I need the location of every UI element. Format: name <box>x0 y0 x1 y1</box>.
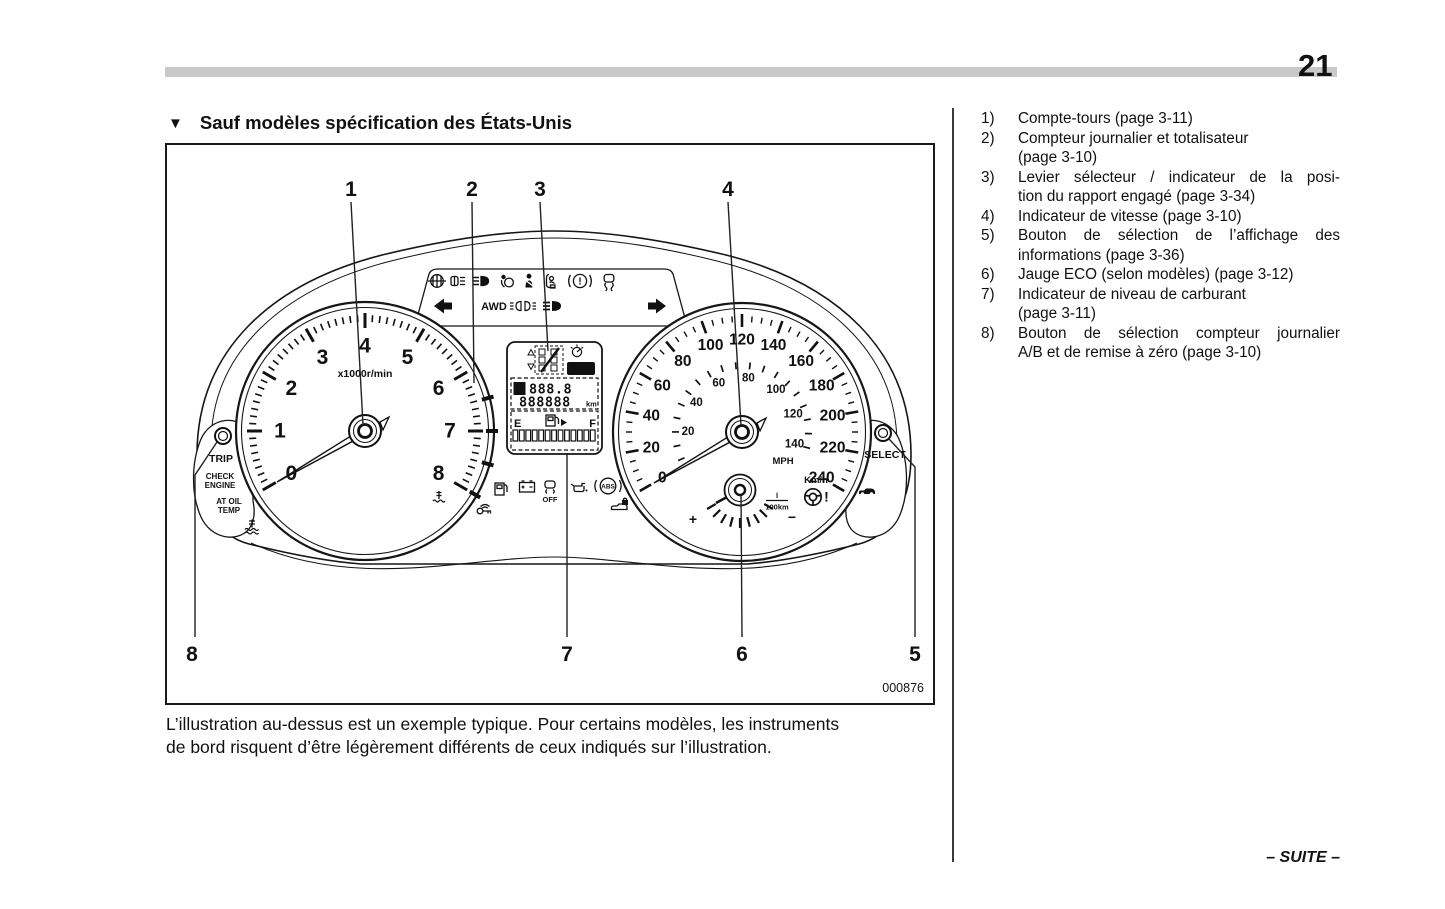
fuel-full-label: F <box>589 418 596 430</box>
svg-text:1: 1 <box>274 420 286 443</box>
svg-text:60: 60 <box>654 378 671 395</box>
svg-text:140: 140 <box>761 337 787 354</box>
legend-item-text: Indicateur de niveau de carburant(page 3… <box>1018 285 1340 324</box>
legend-item: 7)Indicateur de niveau de carburant(page… <box>981 285 1343 324</box>
headlight-warning-icon <box>473 277 489 286</box>
section-title: ▼ Sauf modèles spécification des États-U… <box>168 112 572 134</box>
legend-item-number: 4) <box>981 207 1018 227</box>
legend-list: 1)Compte-tours (page 3-11)2)Compteur jou… <box>981 109 1343 363</box>
select-button <box>875 425 891 441</box>
legend-item-text: Levier sélecteur / indicateur de la posi… <box>1018 168 1340 207</box>
svg-text:3: 3 <box>317 346 329 369</box>
svg-text:80: 80 <box>742 372 755 384</box>
svg-text:140: 140 <box>785 439 804 451</box>
trip-selector-letter: A <box>516 384 523 395</box>
svg-text:l: l <box>776 491 778 500</box>
legend-item: 3)Levier sélecteur / indicateur de la po… <box>981 168 1343 207</box>
lcd-display: SET A 888.8 888888 km E F <box>507 342 602 454</box>
legend-item-number: 2) <box>981 129 1018 168</box>
header-rule <box>165 67 1337 77</box>
trip-button <box>215 428 231 444</box>
speedometer: 020406080100120140160180200220240 204060… <box>613 303 871 561</box>
legend-item-number: 1) <box>981 109 1018 129</box>
svg-text:4: 4 <box>359 335 371 358</box>
legend-item-number: 6) <box>981 265 1018 285</box>
section-marker-icon: ▼ <box>168 115 183 132</box>
eco-plus-label: + <box>689 511 697 527</box>
legend-item-text: Indicateur de vitesse (page 3-10) <box>1018 207 1340 227</box>
page-number: 21 <box>1298 48 1332 84</box>
awd-indicator: AWD <box>481 301 507 313</box>
svg-text:220: 220 <box>820 439 846 456</box>
odometer-value: 888888 <box>519 395 571 411</box>
column-divider <box>952 108 954 862</box>
svg-text:6: 6 <box>433 377 445 400</box>
legend-item: 8)Bouton de sélection compteur journalie… <box>981 324 1343 363</box>
svg-text:5: 5 <box>402 346 414 369</box>
svg-text:!: ! <box>824 489 829 505</box>
at-oil-temp-label-2: TEMP <box>218 506 241 515</box>
svg-text:100km: 100km <box>765 503 789 512</box>
callout-2: 2 <box>466 178 478 201</box>
svg-text:2: 2 <box>286 377 298 400</box>
svg-text:!: ! <box>578 277 581 288</box>
legend-item: 1)Compte-tours (page 3-11) <box>981 109 1343 129</box>
legend-item: 6)Jauge ECO (selon modèles) (page 3-12) <box>981 265 1343 285</box>
section-title-text: Sauf modèles spécification des États-Uni… <box>200 112 572 134</box>
svg-text:120: 120 <box>729 332 755 349</box>
vdc-off-label: OFF <box>543 495 558 504</box>
svg-text:160: 160 <box>788 353 814 370</box>
caption-line: L’illustration au-dessus est un exemple … <box>166 713 956 736</box>
figure-caption: L’illustration au-dessus est un exemple … <box>166 713 956 758</box>
legend-item-number: 5) <box>981 226 1018 265</box>
warning-light-strip <box>416 269 686 326</box>
svg-text:40: 40 <box>643 408 660 425</box>
svg-text:20: 20 <box>682 426 695 438</box>
svg-text:40: 40 <box>690 397 703 409</box>
legend-item: 4)Indicateur de vitesse (page 3-10) <box>981 207 1343 227</box>
legend-item-text: Compteur journalier et totalisateur(page… <box>1018 129 1340 168</box>
figure-code: 000876 <box>882 681 924 695</box>
instrument-cluster-figure: ! AWD <box>165 143 935 705</box>
fuel-empty-label: E <box>514 418 521 430</box>
svg-text:200: 200 <box>820 408 846 425</box>
caption-line: de bord risquent d’être légèrement diffé… <box>166 736 956 759</box>
legend-item: 5)Bouton de sélection de l’affichage des… <box>981 226 1343 265</box>
callout-6: 6 <box>736 643 748 666</box>
svg-text:100: 100 <box>766 384 785 396</box>
at-oil-temp-label-1: AT OIL <box>216 497 242 506</box>
abs-label: ABS <box>601 484 615 491</box>
callout-7: 7 <box>561 643 573 666</box>
odometer-unit: km <box>586 400 597 409</box>
manual-page: 21 ▼ Sauf modèles spécification des État… <box>0 0 1445 909</box>
continuation-marker: – SUITE – <box>1240 849 1340 867</box>
callout-5: 5 <box>909 643 921 666</box>
legend-item-number: 7) <box>981 285 1018 324</box>
svg-text:80: 80 <box>674 353 691 370</box>
cluster-illustration: ! AWD <box>167 145 933 703</box>
eco-minus-label: − <box>788 509 796 525</box>
svg-text:20: 20 <box>643 439 660 456</box>
svg-text:180: 180 <box>809 378 835 395</box>
callout-4: 4 <box>722 178 734 201</box>
legend-item-text: Compte-tours (page 3-11) <box>1018 109 1340 129</box>
svg-text:SET: SET <box>572 364 591 375</box>
legend-item-text: Bouton de sélection compteur journalierA… <box>1018 324 1340 363</box>
trip-button-label: TRIP <box>209 453 233 465</box>
cruise-set-badge: SET <box>567 362 595 375</box>
legend-item: 2)Compteur journalier et totalisateur(pa… <box>981 129 1343 168</box>
speedometer-kmh-unit: Km/h <box>804 475 828 486</box>
check-engine-label-2: ENGINE <box>205 481 236 490</box>
svg-text:120: 120 <box>784 409 803 421</box>
speedometer-mph-unit: MPH <box>772 456 793 467</box>
legend-item-number: 8) <box>981 324 1018 363</box>
svg-text:60: 60 <box>712 377 725 389</box>
legend-item-text: Bouton de sélection de l’affichage desin… <box>1018 226 1340 265</box>
svg-text:7: 7 <box>444 420 456 443</box>
callout-1: 1 <box>345 178 357 201</box>
tachometer-unit-label: x1000r/min <box>338 368 393 380</box>
check-engine-label-1: CHECK <box>206 472 235 481</box>
svg-text:100: 100 <box>698 337 724 354</box>
callout-3: 3 <box>534 178 546 201</box>
legend-item-text: Jauge ECO (selon modèles) (page 3-12) <box>1018 265 1340 285</box>
svg-text:8: 8 <box>433 462 445 485</box>
callout-8: 8 <box>186 643 198 666</box>
legend-item-number: 3) <box>981 168 1018 207</box>
